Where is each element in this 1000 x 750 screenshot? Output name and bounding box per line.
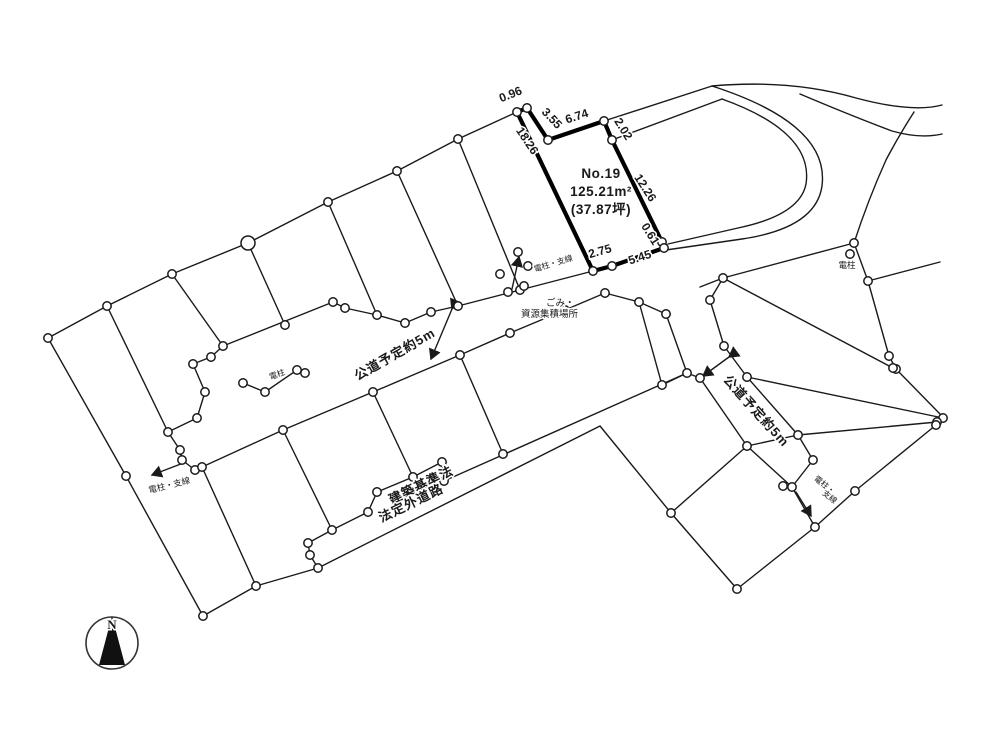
survey-point xyxy=(178,456,186,464)
survey-point xyxy=(199,612,207,620)
survey-point xyxy=(168,270,176,278)
land-survey-map: No.19 125.21m² (37.87坪) 0.96 3.55 6.74 2… xyxy=(0,0,1000,750)
survey-point xyxy=(506,329,514,337)
survey-point xyxy=(499,450,507,458)
parcel-area-tsubo: (37.87坪) xyxy=(571,202,631,217)
dimension-label-355: 3.55 xyxy=(539,105,565,132)
survey-point xyxy=(324,198,332,206)
survey-point xyxy=(454,302,462,310)
survey-point xyxy=(252,582,260,590)
survey-point xyxy=(733,585,741,593)
survey-point xyxy=(401,319,409,327)
survey-point xyxy=(261,388,269,396)
survey-point xyxy=(373,311,381,319)
dimension-label-674: 6.74 xyxy=(563,106,590,127)
survey-point xyxy=(281,321,289,329)
pole-wire-label-left: 電柱・支線 xyxy=(147,475,191,495)
survey-point xyxy=(514,248,522,256)
survey-point xyxy=(456,351,464,359)
survey-point xyxy=(885,352,893,360)
survey-point xyxy=(589,267,597,275)
survey-point xyxy=(496,270,504,278)
survey-point xyxy=(373,488,381,496)
survey-point xyxy=(662,310,670,318)
survey-point xyxy=(504,288,512,296)
dimension-label-545: 5.45 xyxy=(626,247,653,268)
survey-point xyxy=(608,136,616,144)
survey-point xyxy=(658,381,666,389)
survey-point xyxy=(454,135,462,143)
survey-point xyxy=(341,304,349,312)
survey-point xyxy=(743,442,751,450)
survey-point xyxy=(635,298,643,306)
survey-point xyxy=(198,463,206,471)
survey-point xyxy=(207,353,215,361)
garbage-label-line1: ごみ・ xyxy=(546,297,575,309)
right-road-width-arrow xyxy=(703,357,729,376)
survey-point xyxy=(864,277,872,285)
dimension-label-275: 2.75 xyxy=(587,241,614,261)
survey-point xyxy=(743,373,751,381)
survey-point xyxy=(720,342,728,350)
survey-point xyxy=(696,374,704,382)
pole-wire-label-right-line2: 支線 xyxy=(820,488,839,506)
survey-point xyxy=(189,360,197,368)
survey-point xyxy=(601,289,609,297)
survey-point xyxy=(301,369,309,377)
survey-point xyxy=(683,369,691,377)
survey-point xyxy=(544,136,552,144)
survey-point xyxy=(811,523,819,531)
survey-point xyxy=(122,472,130,480)
survey-point xyxy=(524,262,532,270)
labels: No.19 125.21m² (37.87坪) 0.96 3.55 6.74 2… xyxy=(147,83,856,525)
survey-point xyxy=(369,388,377,396)
pole-label-right: 電柱 xyxy=(838,260,856,270)
survey-point xyxy=(889,364,897,372)
survey-point xyxy=(239,379,247,387)
survey-point xyxy=(520,282,528,290)
survey-point xyxy=(809,456,817,464)
survey-point xyxy=(427,308,435,316)
north-compass: N xyxy=(86,616,138,669)
garbage-label-line2: 資源集積場所 xyxy=(521,308,579,320)
survey-point xyxy=(788,483,796,491)
pole-wire-right-arrow xyxy=(796,492,811,516)
survey-points xyxy=(44,104,947,620)
survey-point xyxy=(279,426,287,434)
survey-point xyxy=(304,539,312,547)
survey-point xyxy=(794,431,802,439)
pole-wire-label-center: 電柱・支線 xyxy=(533,253,574,274)
survey-point xyxy=(293,366,301,374)
survey-point xyxy=(667,509,675,517)
compass-n-label: N xyxy=(107,617,117,632)
parcel-number: No.19 xyxy=(581,166,620,181)
survey-point xyxy=(608,262,616,270)
survey-point xyxy=(523,104,531,112)
survey-point xyxy=(932,421,940,429)
survey-point xyxy=(164,428,172,436)
survey-point xyxy=(393,167,401,175)
dimension-label-096: 0.96 xyxy=(497,83,524,105)
survey-point xyxy=(306,551,314,559)
survey-point xyxy=(846,250,854,258)
survey-point xyxy=(364,508,372,516)
left-road-label: 公道予定約5m xyxy=(352,325,438,383)
survey-point xyxy=(201,388,209,396)
survey-point xyxy=(314,564,322,572)
survey-point xyxy=(660,244,668,252)
survey-point xyxy=(193,414,201,422)
survey-point xyxy=(600,117,608,125)
survey-point xyxy=(103,302,111,310)
survey-point xyxy=(328,526,336,534)
parcel-area-sqm: 125.21m² xyxy=(570,184,632,199)
survey-point xyxy=(513,108,521,116)
survey-point xyxy=(851,487,859,495)
survey-point xyxy=(850,239,858,247)
survey-point xyxy=(241,236,255,250)
survey-point xyxy=(44,334,52,342)
survey-point xyxy=(329,298,337,306)
survey-point xyxy=(176,446,184,454)
survey-point xyxy=(719,274,727,282)
survey-point xyxy=(219,342,227,350)
survey-point xyxy=(779,482,787,490)
survey-point xyxy=(706,296,714,304)
boundary-lines xyxy=(48,84,943,616)
map-canvas: No.19 125.21m² (37.87坪) 0.96 3.55 6.74 2… xyxy=(0,0,1000,750)
